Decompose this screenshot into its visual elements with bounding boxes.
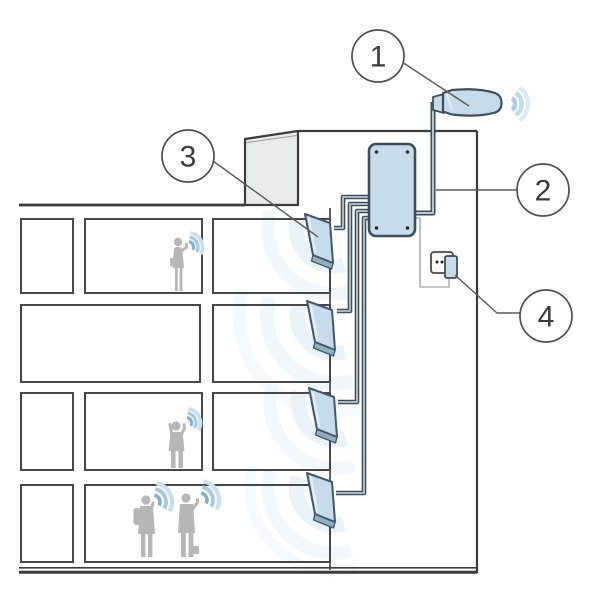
diagram-canvas: 1 2 3 4 [0, 0, 600, 600]
callout-1-number: 1 [370, 41, 387, 74]
screw [406, 226, 410, 230]
room [85, 393, 202, 470]
room [21, 305, 200, 382]
outlet-hole [436, 261, 439, 264]
callout-4-number: 4 [538, 301, 555, 334]
callout-2-number: 2 [535, 175, 552, 208]
callout-4: 4 [520, 290, 572, 342]
screw [375, 150, 379, 154]
room [21, 485, 73, 562]
room [85, 219, 202, 293]
power-plug [445, 256, 457, 278]
screw [406, 150, 410, 154]
outlet-hole [441, 261, 444, 264]
room [21, 219, 73, 293]
booster-diagram: 1 2 3 4 [0, 0, 600, 600]
outdoor-antenna [433, 89, 502, 115]
callout-1: 1 [352, 30, 404, 82]
signal-amplifier [369, 144, 415, 236]
callout-3: 3 [162, 130, 214, 182]
screw [375, 226, 379, 230]
callout-3-number: 3 [180, 141, 197, 174]
callout-2: 2 [517, 164, 569, 216]
room [21, 393, 73, 470]
antenna-body [443, 89, 502, 115]
